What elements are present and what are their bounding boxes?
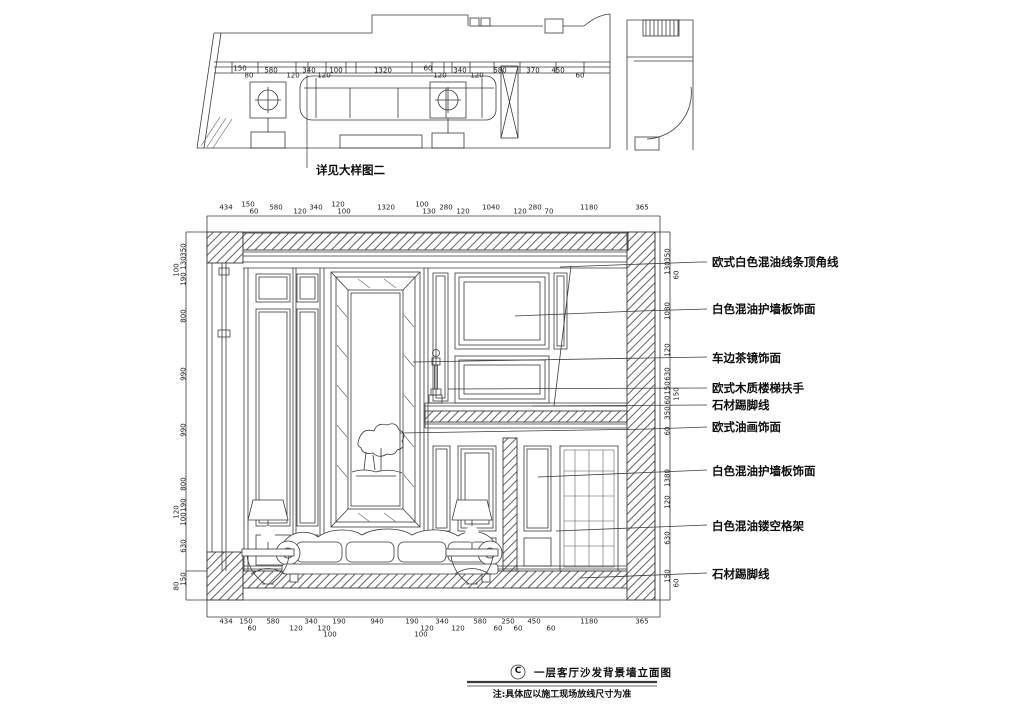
dimension-value: 580 xyxy=(266,619,279,626)
dimension-value: 280 xyxy=(439,205,452,212)
dimension-text-layer: 1508058012034012010013206012034012058037… xyxy=(0,0,1024,724)
dimension-value: 80 xyxy=(174,582,181,591)
dimension-value: 130 xyxy=(422,209,435,216)
dimension-value: 60 xyxy=(514,626,523,633)
dimension-value: 190 xyxy=(181,272,188,285)
dimension-value: 60 xyxy=(576,73,585,80)
dimension-value: 340 xyxy=(302,68,315,75)
dimension-value: 340 xyxy=(435,619,448,626)
dimension-value: 1180 xyxy=(580,205,598,212)
dimension-value: 60 xyxy=(424,66,433,73)
dimension-value: 190 xyxy=(332,619,345,626)
dimension-value: 450 xyxy=(527,619,540,626)
dimension-value: 70 xyxy=(545,209,554,216)
dimension-value: 60 xyxy=(665,427,672,436)
dimension-value: 120 xyxy=(451,626,464,633)
dimension-value: 100 xyxy=(337,209,350,216)
dimension-value: 340 xyxy=(309,205,322,212)
dimension-value: 580 xyxy=(269,205,282,212)
dimension-value: 990 xyxy=(181,367,188,380)
dimension-value: 1080 xyxy=(665,302,672,320)
dimension-value: 60 xyxy=(674,271,681,280)
dimension-value: 580 xyxy=(264,68,277,75)
dimension-value: 120 xyxy=(289,626,302,633)
dimension-value: 280 xyxy=(528,205,541,212)
dimension-value: 120 xyxy=(665,495,672,508)
dimension-value: 80 xyxy=(245,73,254,80)
dimension-value: 340 xyxy=(304,619,317,626)
dimension-value: 120 xyxy=(665,343,672,356)
dimension-value: 1380 xyxy=(665,469,672,487)
dimension-value: 60 xyxy=(665,396,672,405)
dimension-value: 100 xyxy=(329,68,342,75)
dimension-value: 350 xyxy=(665,406,672,419)
dimension-value: 1320 xyxy=(374,68,392,75)
dimension-value: 150 xyxy=(665,381,672,394)
dimension-value: 1180 xyxy=(580,619,598,626)
dimension-value: 800 xyxy=(181,477,188,490)
dimension-value: 130 xyxy=(665,261,672,274)
dimension-value: 580 xyxy=(493,68,506,75)
dimension-value: 120 xyxy=(470,73,483,80)
dimension-value: 150 xyxy=(674,387,681,400)
dimension-value: 150 xyxy=(181,572,188,585)
dimension-value: 940 xyxy=(370,619,383,626)
dimension-value: 1040 xyxy=(482,205,500,212)
dimension-value: 434 xyxy=(219,205,232,212)
dimension-value: 120 xyxy=(293,209,306,216)
dimension-value: 120 xyxy=(286,73,299,80)
dimension-value: 630 xyxy=(665,367,672,380)
dimension-value: 365 xyxy=(635,205,648,212)
dimension-value: 100 xyxy=(181,512,188,525)
dimension-value: 60 xyxy=(248,626,257,633)
dimension-value: 365 xyxy=(635,619,648,626)
dimension-value: 100 xyxy=(414,632,427,639)
dimension-value: 150 xyxy=(665,569,672,582)
dimension-value: 190 xyxy=(181,498,188,511)
dimension-value: 1320 xyxy=(377,205,395,212)
dimension-value: 630 xyxy=(181,539,188,552)
dimension-value: 630 xyxy=(665,531,672,544)
dimension-value: 120 xyxy=(513,209,526,216)
dimension-value: 120 xyxy=(456,209,469,216)
dimension-value: 190 xyxy=(405,619,418,626)
dimension-value: 60 xyxy=(674,579,681,588)
dimension-value: 990 xyxy=(181,423,188,436)
dimension-value: 350 xyxy=(181,243,188,256)
dimension-value: 340 xyxy=(453,68,466,75)
drawing-sheet: 详见大样图二 欧式白色混油线条顶角线 白色混油护墙板饰面 车边茶镜饰面 欧式木质… xyxy=(0,0,1024,724)
dimension-value: 370 xyxy=(526,68,539,75)
dimension-value: 120 xyxy=(420,626,433,633)
dimension-value: 580 xyxy=(473,619,486,626)
dimension-value: 60 xyxy=(494,626,503,633)
dimension-value: 60 xyxy=(547,626,556,633)
dimension-value: 100 xyxy=(323,632,336,639)
dimension-value: 120 xyxy=(433,73,446,80)
dimension-value: 130 xyxy=(181,256,188,269)
dimension-value: 450 xyxy=(551,68,564,75)
dimension-value: 350 xyxy=(665,248,672,261)
dimension-value: 800 xyxy=(181,309,188,322)
dimension-value: 60 xyxy=(250,209,259,216)
dimension-value: 434 xyxy=(219,619,232,626)
